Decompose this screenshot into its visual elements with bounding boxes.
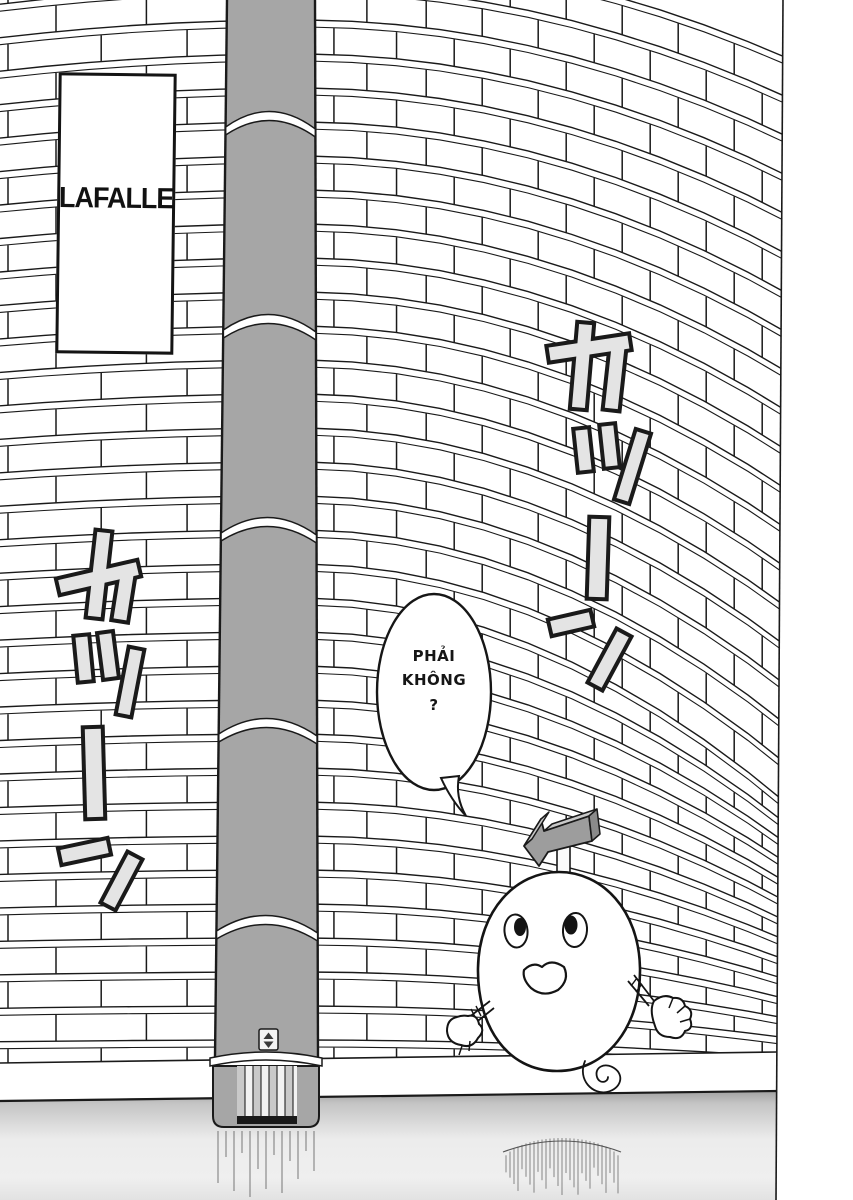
lafalle-sign-text: LAFALLE [59, 181, 174, 216]
left-pupil [514, 918, 526, 936]
lafalle-sign: LAFALLE [55, 72, 176, 354]
speech-line: KHÔNG [377, 668, 491, 692]
speech-bubble-text: PHẢI KHÔNG ? [377, 644, 491, 717]
speech-line: PHẢI [377, 644, 491, 668]
speech-line: ? [377, 693, 491, 717]
left-hand [447, 1016, 482, 1046]
right-pupil [565, 916, 578, 935]
gray-pillar [210, 0, 322, 1127]
floor [0, 1090, 777, 1200]
